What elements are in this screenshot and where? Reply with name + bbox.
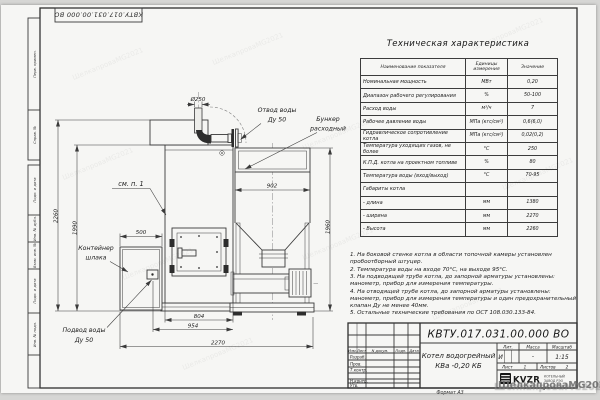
spec-row: Температура уходящих газов, не более°С25… (361, 142, 558, 155)
door-hinge (170, 265, 175, 273)
dim-text-500: 500 (136, 230, 147, 236)
spec-row: Диапазон рабочего регулирования%50-100 (361, 89, 558, 102)
spec-header-row: Наименование показателя Единицы измерени… (361, 59, 558, 76)
svg-text:Бункер: Бункер (316, 116, 339, 123)
door-hinge (224, 239, 229, 247)
outlet-pipe (211, 135, 228, 143)
sheet-number: 1 (524, 365, 527, 370)
svg-text:Подп.: Подп. (396, 349, 407, 353)
svg-text:Пров.: Пров. (350, 362, 362, 367)
chimney-and-outlet-pipe (195, 107, 247, 147)
svg-text:Изм.: Изм. (348, 349, 356, 353)
format-label: Формат А3 (436, 390, 463, 396)
scale-value: 1:15 (555, 354, 569, 361)
svg-text:Ду 50: Ду 50 (267, 117, 286, 124)
base-foot (297, 312, 306, 316)
screw-feeder-tube (233, 274, 289, 293)
chimney-pipe (195, 108, 203, 133)
dimension-container-500: 500 (120, 230, 162, 246)
svg-text:N докум.: N докум. (372, 349, 389, 353)
dimension-2270: 2270 (120, 312, 313, 349)
label-see-note-1: см. п. 1 (112, 180, 166, 215)
spec-row: - Высотамм2260 (361, 223, 558, 236)
outlet-valve (232, 129, 235, 147)
drawing-sheet-page: Перв. примен. Справ. № Подп. и дата Инв.… (0, 0, 600, 400)
fuel-hopper (230, 148, 314, 316)
margin-label: Взам. инв. № (33, 243, 37, 268)
product-name-line2: КВа -0,20 КБ (435, 362, 482, 370)
door-hinge (170, 239, 175, 247)
note-item: 5. Остальные технические требования по О… (350, 310, 576, 317)
svg-text:Дата: Дата (408, 349, 418, 353)
dim-text-2260: 2260 (54, 209, 60, 223)
dim-text-1990: 1990 (73, 221, 79, 235)
spec-row: Габариты котла (361, 183, 558, 196)
margin-label: Инв. № подл. (33, 322, 37, 347)
svg-text:Подвод воды: Подвод воды (63, 327, 106, 334)
svg-text:Контейнер: Контейнер (78, 245, 114, 252)
svg-text:Отвод воды: Отвод воды (258, 107, 297, 114)
product-name-line1: Котел водогрейный (422, 352, 496, 360)
svg-text:Масса: Масса (526, 345, 540, 350)
spec-row: Рабочее давление водыМПа (кгс/см²)0,6(6,… (361, 116, 558, 129)
spec-row: Гидравлическое сопротивление котлаМПа (к… (361, 129, 558, 142)
dim-text-250: Ø250 (190, 96, 206, 103)
dim-text-1960: 1960 (326, 220, 332, 234)
svg-text:Листов: Листов (539, 365, 556, 370)
dim-text-804: 804 (194, 314, 205, 320)
svg-text:см. п. 1: см. п. 1 (118, 180, 144, 188)
door-hinge (224, 265, 229, 273)
spec-table: Наименование показателя Единицы измерени… (360, 58, 558, 237)
doc-number: КВТУ.017.031.00.000 ВО (428, 329, 570, 341)
dimension-hopper-902: 902 (235, 184, 310, 191)
svg-text:шлака: шлака (86, 255, 107, 262)
sheets-total: 2 (566, 365, 569, 370)
margin-label: Инв. № дубл. (33, 216, 37, 241)
spec-row: - ширинамм2270 (361, 209, 558, 222)
title-block: КВТУ.017.031.00.000 ВО Котел водогрейный… (348, 323, 577, 388)
margin-label: Перв. примен. (33, 50, 37, 78)
note-item: 3. На подводящей трубе котла, до запорно… (350, 274, 576, 288)
mass-value: - (532, 354, 534, 361)
margin-label: Подп. и дата (33, 177, 37, 203)
label-water-outlet: Отвод воды Ду 50 (241, 107, 297, 140)
dim-text-902: 902 (267, 184, 278, 190)
svg-text:Т.контр.: Т.контр. (350, 368, 367, 373)
dimension-height-1960: 1960 (310, 148, 333, 311)
spec-row: Расход водым³/ч7 (361, 102, 558, 115)
note-item: 2. Температура воды на входе 70°С, на вы… (350, 267, 576, 274)
svg-text:Разраб.: Разраб. (350, 355, 366, 360)
svg-text:Лист: Лист (356, 349, 367, 353)
svg-text:Ду 50: Ду 50 (74, 337, 93, 344)
base-foot (233, 312, 242, 316)
svg-text:Масштаб: Масштаб (552, 345, 572, 350)
spec-row: - длинамм1380 (361, 196, 558, 209)
spec-row: К.П.Д. котла на проектном топливе%80 (361, 156, 558, 169)
site-watermark: ШелкапроваMG2021 (498, 380, 600, 391)
hopper-throat (262, 250, 285, 267)
dim-text-2270: 2270 (211, 341, 225, 347)
svg-text:КОТЕЛЬНЫЙ: КОТЕЛЬНЫЙ (544, 374, 566, 379)
dim-text-954: 954 (188, 324, 199, 330)
svg-text:Лист: Лист (501, 365, 513, 370)
spec-table-title: Техническая характеристика (358, 39, 558, 49)
lit-value: И (498, 354, 503, 361)
boiler-body (150, 120, 235, 311)
margin-label: Справ. № (33, 126, 37, 144)
spec-row: Номинальная мощностьМВт0,20 (361, 76, 558, 89)
inverted-doc-number-stamp: КВТУ.017.031.00.000 ВО (54, 11, 143, 19)
svg-text:Лит.: Лит. (502, 345, 513, 350)
svg-text:Утв.: Утв. (350, 383, 358, 388)
note-item: 1. На боковой стенке котла в области топ… (350, 252, 576, 266)
margin-label: Подп. и дата (33, 278, 37, 304)
